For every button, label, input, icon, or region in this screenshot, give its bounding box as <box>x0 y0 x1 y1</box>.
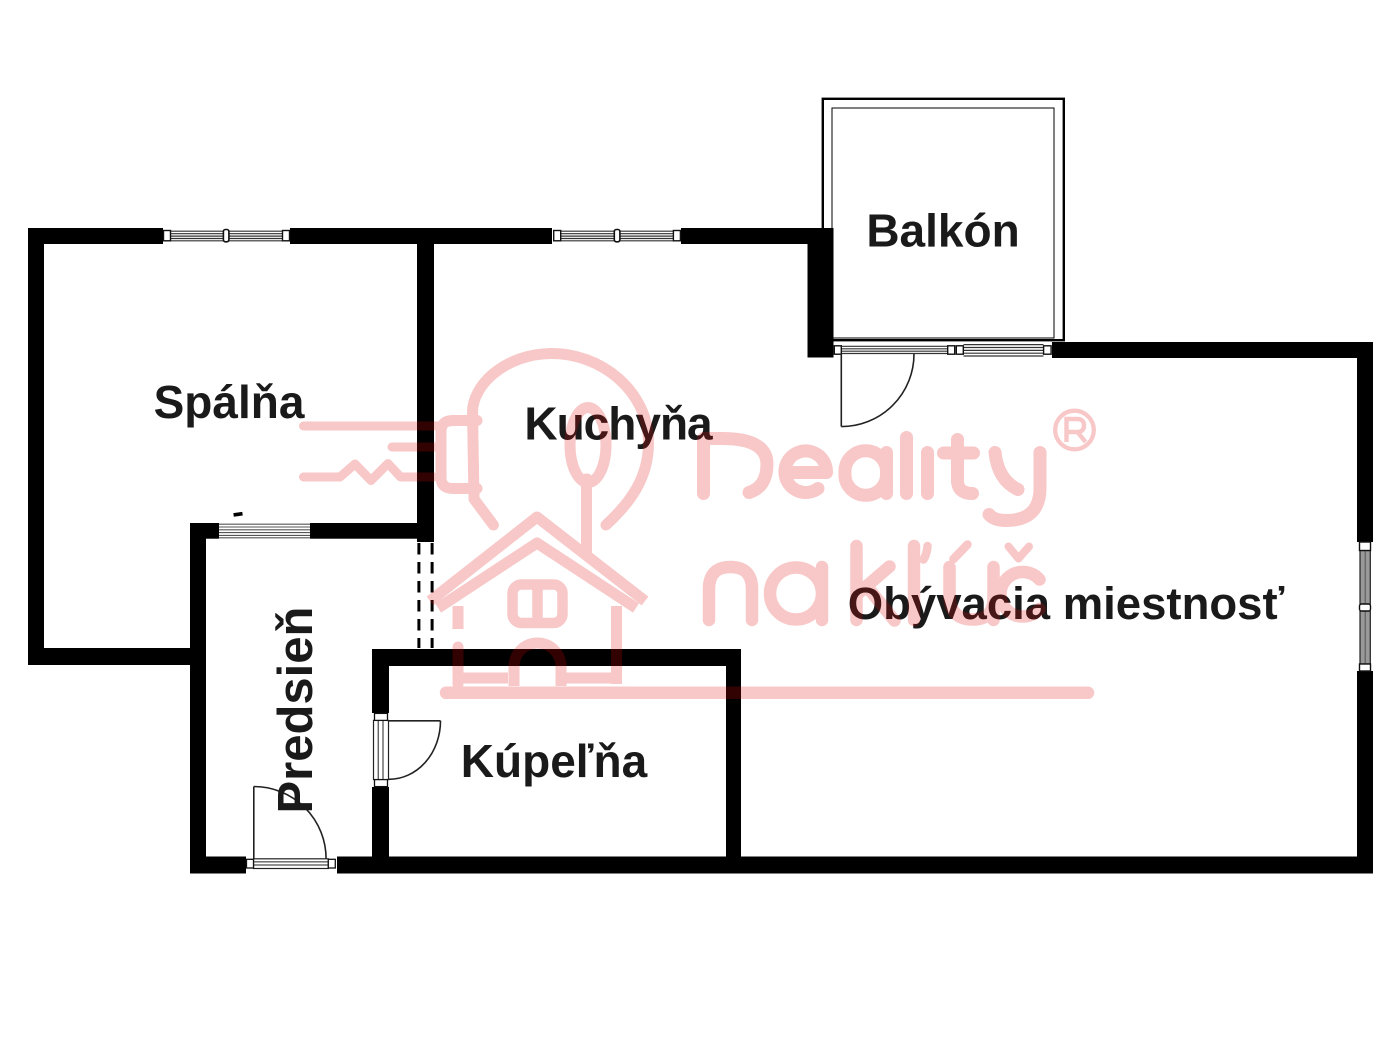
svg-text:Kúpeľňa: Kúpeľňa <box>461 735 648 787</box>
svg-text:Predsieň: Predsieň <box>269 607 323 814</box>
svg-text:Balkón: Balkón <box>866 205 1019 257</box>
svg-text:Spálňa: Spálňa <box>154 376 305 428</box>
svg-text:Kuchyňa: Kuchyňa <box>524 398 713 450</box>
